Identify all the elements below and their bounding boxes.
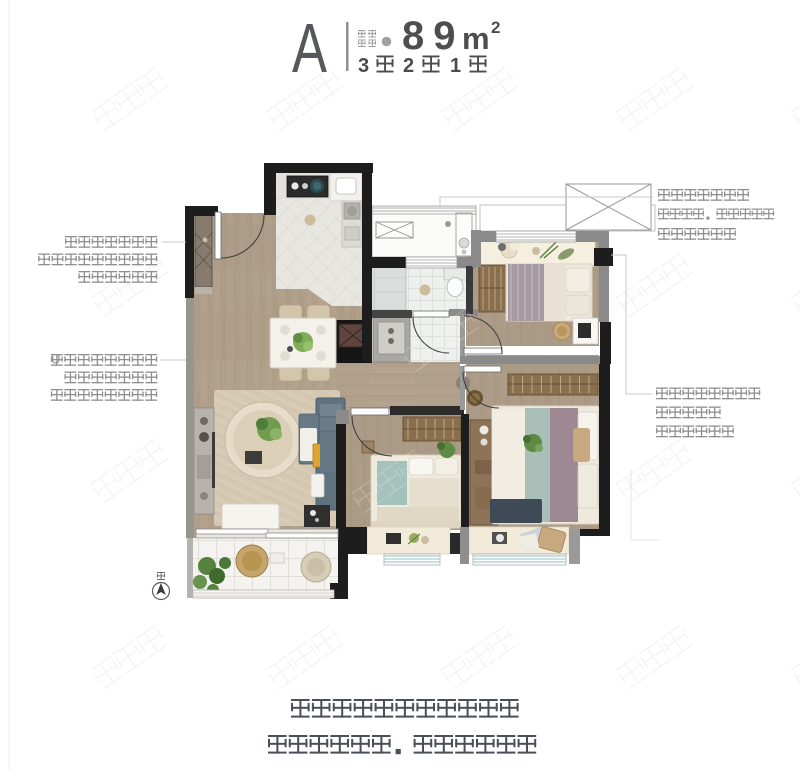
svg-text:m: m	[462, 21, 490, 56]
svg-text:89: 89	[402, 14, 465, 58]
svg-text:2: 2	[403, 55, 414, 77]
svg-text:3: 3	[358, 55, 369, 77]
svg-text:1: 1	[450, 55, 461, 77]
svg-text:U: U	[51, 352, 60, 367]
svg-text:A: A	[292, 9, 327, 87]
svg-text:2: 2	[491, 18, 500, 37]
